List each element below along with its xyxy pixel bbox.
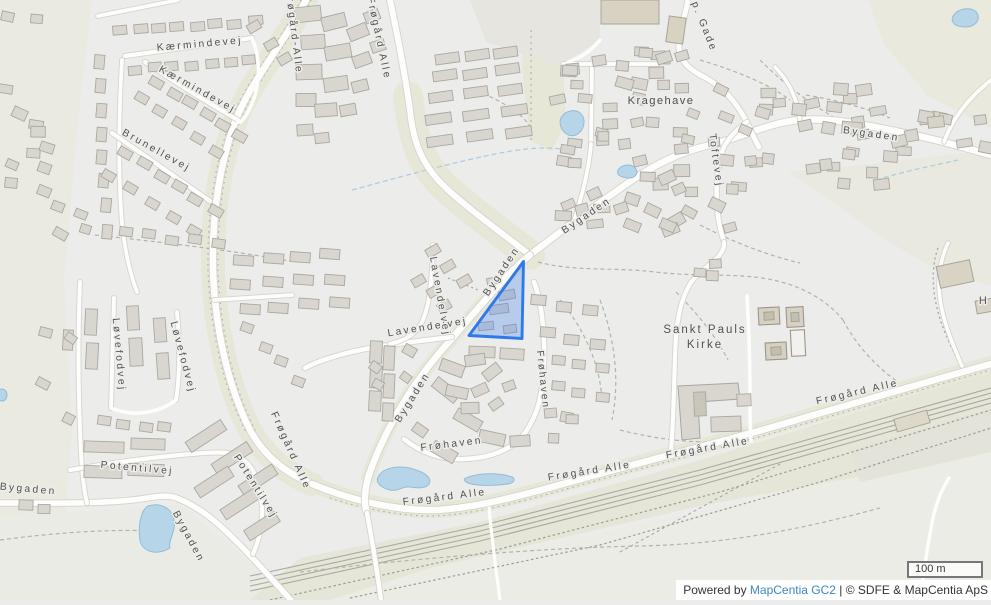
svg-text:Sankt Pauls: Sankt Pauls — [663, 324, 746, 336]
svg-text:Kirke: Kirke — [687, 339, 723, 351]
svg-text:Kragehave: Kragehave — [628, 95, 695, 107]
svg-text:H: H — [979, 295, 987, 307]
